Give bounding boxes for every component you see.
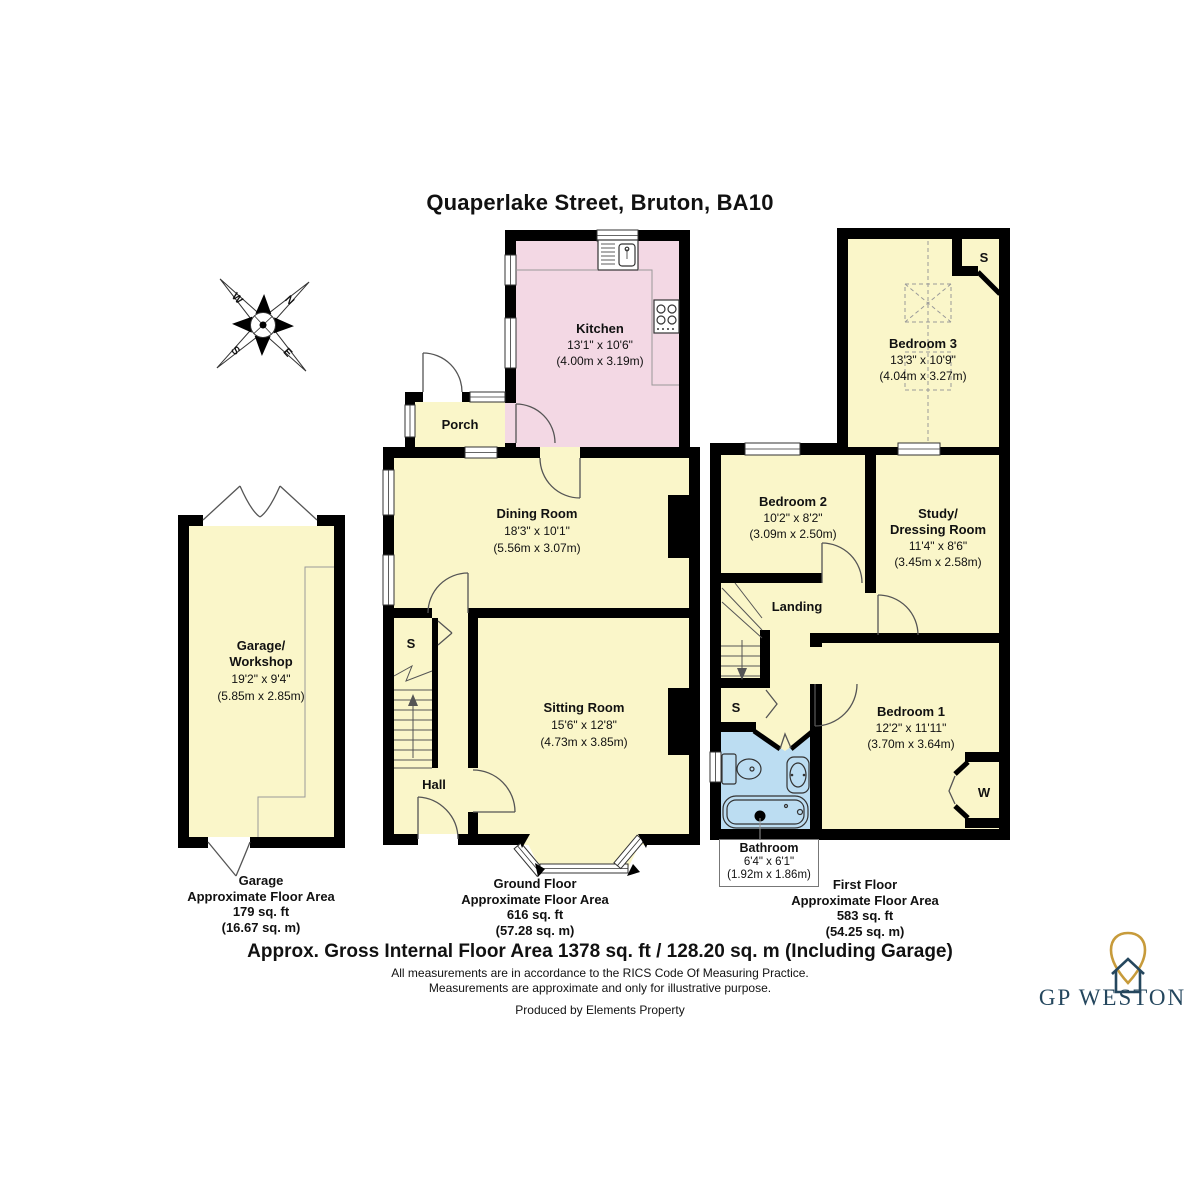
bay-window [514,834,651,877]
ground-caption-sqft: 616 sq. ft [435,907,635,923]
ground-floor-plan: Kitchen 13'1" x 10'6" (4.00m x 3.19m) Po… [383,230,700,877]
floorplan-page: Quaperlake Street, Bruton, BA10 N E S [0,0,1200,1200]
garage-area-caption: Garage Approximate Floor Area 179 sq. ft… [161,873,361,935]
bedroom2-room-label: Bedroom 2 [759,494,827,509]
garage-metric: (5.85m x 2.85m) [217,689,304,703]
floorplan-drawing: N E S W Garage/ Workshop 19'2" x 9'4" (5… [0,0,1200,1200]
wardrobe-label: W [978,785,991,800]
sitting-imperial: 15'6" x 12'8" [551,718,617,732]
sitting-room-label: Sitting Room [544,700,625,715]
kitchen-hob [654,300,679,333]
first-caption-sub: Approximate Floor Area [765,893,965,909]
bedroom1-room-label: Bedroom 1 [877,704,945,719]
rics-note: All measurements are in accordance to th… [0,966,1200,980]
garage-room-label: Garage/ [237,638,286,653]
kitchen-room-label: Kitchen [576,321,624,336]
dining-room-label: Dining Room [497,506,578,521]
bedroom3-storage-label: S [980,250,989,265]
bedroom2-imperial: 10'2" x 8'2" [763,511,822,525]
bedroom3-room-label: Bedroom 3 [889,336,957,351]
study-metric: (3.45m x 2.58m) [894,555,981,569]
garage-caption-sub: Approximate Floor Area [161,889,361,905]
bedroom3-metric: (4.04m x 3.27m) [879,369,966,383]
garage-plan: Garage/ Workshop 19'2" x 9'4" (5.85m x 2… [178,486,345,876]
understairs-storage-label: S [407,636,416,651]
dining-metric: (5.56m x 3.07m) [493,541,580,555]
garage-imperial: 19'2" x 9'4" [231,672,290,686]
gross-area-line: Approx. Gross Internal Floor Area 1378 s… [0,941,1200,963]
ground-caption-sqm: (57.28 sq. m) [435,923,635,939]
sitting-metric: (4.73m x 3.85m) [540,735,627,749]
hall-room-label: Hall [422,777,446,792]
study-room-label: Study/ [918,506,958,521]
garage-caption-sqft: 179 sq. ft [161,904,361,920]
landing-storage-label: S [732,700,741,715]
dining-imperial: 18'3" x 10'1" [504,524,570,538]
study-imperial: 11'4" x 8'6" [909,539,967,553]
bedroom2-metric: (3.09m x 2.50m) [749,527,836,541]
ground-floor-area-caption: Ground Floor Approximate Floor Area 616 … [435,876,635,938]
ground-caption-title: Ground Floor [435,876,635,892]
bathroom-imperial: 6'4" x 6'1" [720,856,818,870]
garage-caption-title: Garage [161,873,361,889]
porch-room-label: Porch [442,417,479,432]
kitchen-metric: (4.00m x 3.19m) [556,354,643,368]
kitchen-sink [598,240,638,270]
first-caption-title: First Floor [765,877,965,893]
brand-name: GP WESTON [1030,985,1195,1011]
garage-room-label2: Workshop [229,654,292,669]
landing-room-label: Landing [772,599,823,614]
bathroom-room-label: Bathroom [720,842,818,856]
bedroom1-imperial: 12'2" x 11'11" [876,721,947,735]
ground-caption-sub: Approximate Floor Area [435,892,635,908]
brand-logo: GP WESTON [1030,930,1195,1015]
first-floor-area-caption: First Floor Approximate Floor Area 583 s… [765,877,965,939]
bedroom3-imperial: 13'3" x 10'9" [890,353,956,367]
bedroom1-metric: (3.70m x 3.64m) [867,737,954,751]
study-room-label2: Dressing Room [890,522,986,537]
produced-by-note: Produced by Elements Property [0,1003,1200,1017]
approx-note: Measurements are approximate and only fo… [0,981,1200,995]
kitchen-imperial: 13'1" x 10'6" [567,338,633,352]
first-caption-sqft: 583 sq. ft [765,908,965,924]
garage-caption-sqm: (16.67 sq. m) [161,920,361,936]
compass-rose: N E S W [174,236,352,414]
first-caption-sqm: (54.25 sq. m) [765,924,965,940]
first-floor-plan: S [710,228,1010,840]
